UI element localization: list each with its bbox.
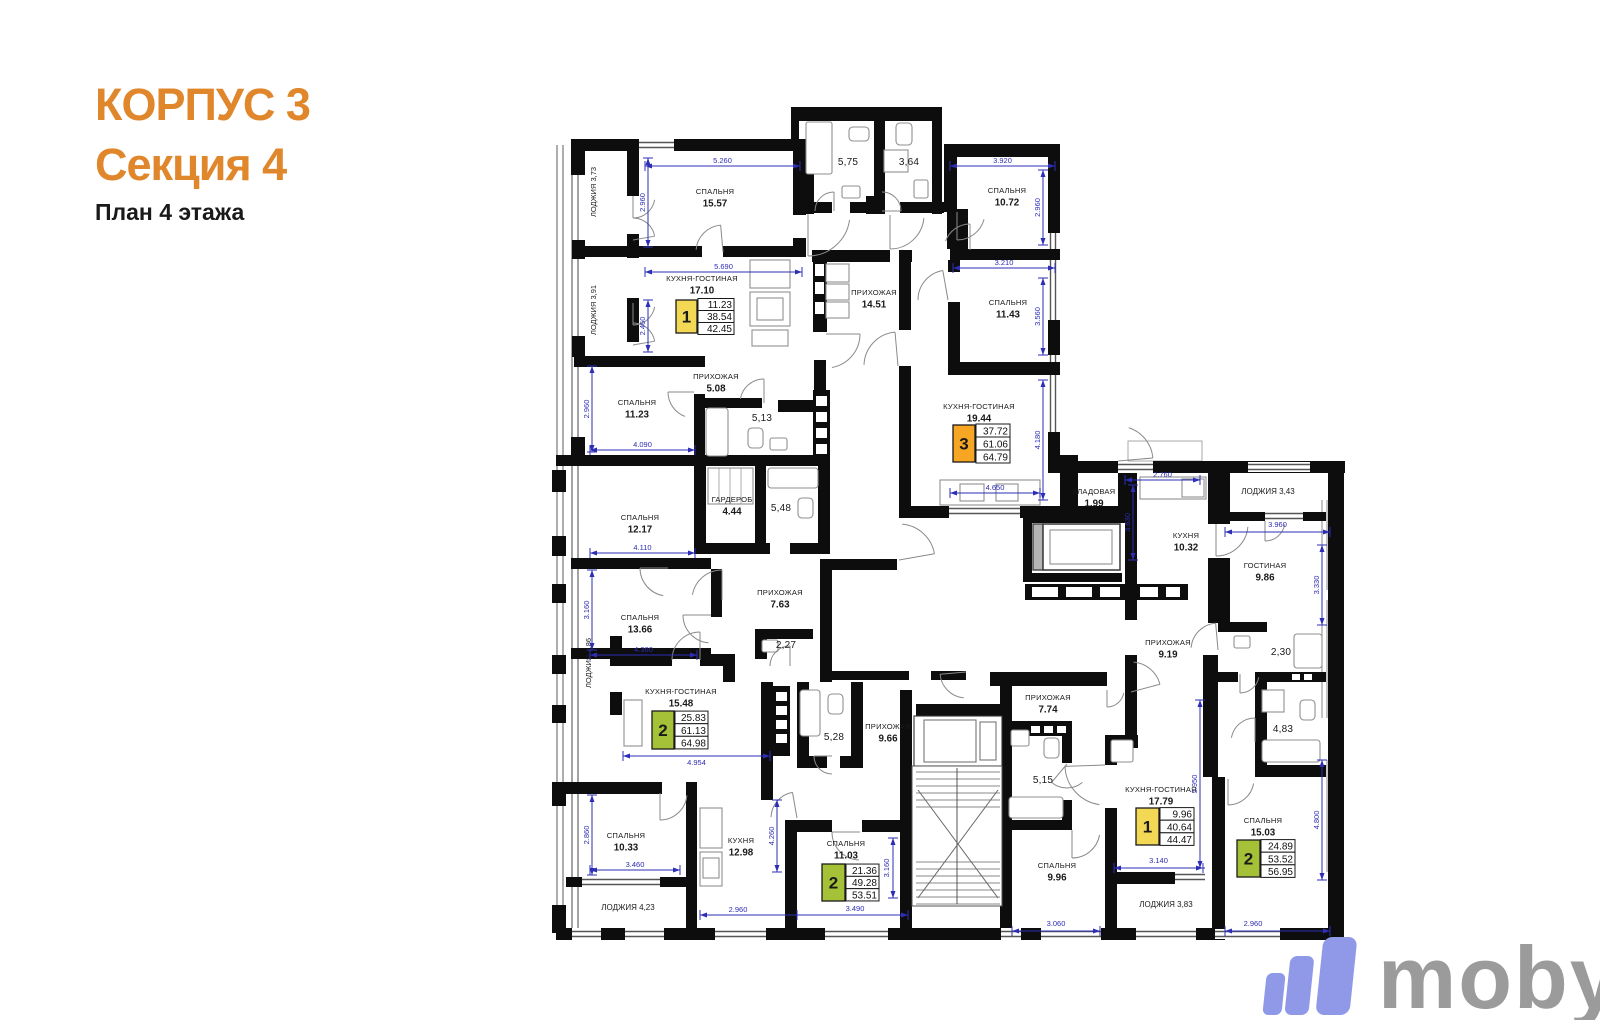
svg-text:21.36: 21.36	[852, 866, 877, 877]
svg-text:4.260: 4.260	[767, 827, 776, 846]
svg-text:13.66: 13.66	[628, 625, 653, 636]
svg-text:5.690: 5.690	[714, 262, 733, 271]
svg-text:ЛОДЖИЯ 4,23: ЛОДЖИЯ 4,23	[601, 903, 655, 912]
svg-text:7.63: 7.63	[770, 600, 790, 611]
svg-text:ГОСТИНАЯ: ГОСТИНАЯ	[1244, 561, 1287, 570]
svg-text:3: 3	[959, 435, 968, 454]
svg-text:1.99: 1.99	[1084, 499, 1104, 510]
svg-text:СПАЛЬНЯ: СПАЛЬНЯ	[989, 298, 1028, 307]
svg-text:5.950: 5.950	[1190, 775, 1199, 794]
svg-text:9.96: 9.96	[1173, 810, 1193, 821]
svg-text:4.110: 4.110	[633, 543, 651, 552]
svg-text:53.51: 53.51	[852, 890, 877, 901]
svg-text:2.960: 2.960	[582, 400, 591, 419]
svg-text:11.43: 11.43	[996, 310, 1021, 321]
svg-text:10.33: 10.33	[614, 843, 639, 854]
svg-text:1: 1	[1143, 818, 1152, 837]
svg-text:44.47: 44.47	[1167, 835, 1192, 846]
svg-text:5,48: 5,48	[771, 503, 792, 514]
svg-text:2.960: 2.960	[1244, 919, 1263, 928]
svg-text:2,30: 2,30	[1271, 647, 1292, 658]
svg-text:5,13: 5,13	[752, 413, 773, 424]
svg-text:3.330: 3.330	[1312, 576, 1321, 595]
svg-text:2: 2	[829, 874, 838, 893]
svg-text:ПРИХОЖАЯ: ПРИХОЖАЯ	[757, 588, 803, 597]
svg-text:3.160: 3.160	[582, 601, 591, 620]
svg-text:40.64: 40.64	[1167, 822, 1192, 833]
svg-text:СПАЛЬНЯ: СПАЛЬНЯ	[696, 187, 735, 196]
svg-text:5.08: 5.08	[706, 384, 726, 395]
svg-text:5,75: 5,75	[838, 157, 859, 168]
svg-text:14.51: 14.51	[862, 300, 887, 311]
svg-text:49.28: 49.28	[852, 878, 877, 889]
svg-text:2,27: 2,27	[776, 640, 797, 651]
svg-text:5.260: 5.260	[713, 156, 732, 165]
svg-text:15.03: 15.03	[1251, 828, 1276, 839]
svg-text:КУХНЯ: КУХНЯ	[1173, 531, 1199, 540]
svg-text:2.760: 2.760	[1153, 470, 1172, 479]
svg-text:10.32: 10.32	[1174, 543, 1199, 554]
svg-text:2.860: 2.860	[582, 826, 591, 845]
svg-text:25.83: 25.83	[681, 713, 706, 724]
svg-text:61.06: 61.06	[983, 440, 1008, 451]
svg-text:9.86: 9.86	[1255, 573, 1275, 584]
svg-text:ГАРДЕРОБ: ГАРДЕРОБ	[712, 495, 753, 504]
svg-text:11.23: 11.23	[708, 300, 733, 311]
svg-text:ЛОДЖИЯ 3,73: ЛОДЖИЯ 3,73	[589, 167, 598, 217]
svg-text:СПАЛЬНЯ: СПАЛЬНЯ	[988, 186, 1027, 195]
svg-text:3.630: 3.630	[1123, 513, 1132, 532]
svg-text:ПРИХОЖАЯ: ПРИХОЖАЯ	[1025, 693, 1071, 702]
svg-text:64.79: 64.79	[983, 453, 1008, 464]
svg-text:5,15: 5,15	[1033, 775, 1054, 786]
svg-text:СПАЛЬНЯ: СПАЛЬНЯ	[827, 839, 866, 848]
svg-text:12.98: 12.98	[729, 848, 754, 859]
svg-text:3.160: 3.160	[882, 859, 891, 878]
svg-text:3.920: 3.920	[993, 156, 1012, 165]
svg-text:53.52: 53.52	[1268, 854, 1293, 865]
svg-text:КЛАДОВАЯ: КЛАДОВАЯ	[1073, 487, 1116, 496]
svg-text:11.23: 11.23	[625, 410, 650, 421]
svg-text:7.74: 7.74	[1038, 705, 1058, 716]
svg-text:4.44: 4.44	[722, 507, 742, 518]
svg-text:3.060: 3.060	[1047, 919, 1066, 928]
svg-text:СПАЛЬНЯ: СПАЛЬНЯ	[607, 831, 646, 840]
svg-text:3.960: 3.960	[1268, 520, 1287, 529]
svg-text:10.72: 10.72	[995, 198, 1020, 209]
svg-text:9.19: 9.19	[1158, 650, 1178, 661]
svg-text:12.17: 12.17	[628, 525, 653, 536]
svg-text:СПАЛЬНЯ: СПАЛЬНЯ	[1244, 816, 1283, 825]
svg-text:ЛОДЖИЯ 3,83: ЛОДЖИЯ 3,83	[1139, 900, 1193, 909]
svg-text:3,64: 3,64	[899, 157, 920, 168]
svg-text:5,28: 5,28	[824, 732, 845, 743]
svg-text:4.800: 4.800	[1312, 811, 1321, 830]
svg-text:37.72: 37.72	[983, 427, 1008, 438]
svg-text:СПАЛЬНЯ: СПАЛЬНЯ	[618, 398, 657, 407]
svg-text:КУХНЯ-ГОСТИНАЯ: КУХНЯ-ГОСТИНАЯ	[666, 274, 738, 283]
svg-text:3.210: 3.210	[995, 258, 1014, 267]
svg-text:4.650: 4.650	[986, 483, 1005, 492]
svg-text:4.180: 4.180	[1033, 431, 1042, 450]
svg-text:3.490: 3.490	[846, 904, 865, 913]
svg-text:38.54: 38.54	[707, 312, 732, 323]
svg-text:2.960: 2.960	[1033, 198, 1042, 217]
svg-text:19.44: 19.44	[967, 414, 992, 425]
svg-text:64.98: 64.98	[681, 738, 706, 749]
svg-text:15.48: 15.48	[669, 699, 694, 710]
svg-text:42.45: 42.45	[707, 324, 732, 335]
svg-text:4.360: 4.360	[634, 645, 653, 654]
svg-text:24.89: 24.89	[1268, 842, 1293, 853]
svg-text:СПАЛЬНЯ: СПАЛЬНЯ	[621, 513, 660, 522]
svg-text:ПРИХОЖАЯ: ПРИХОЖАЯ	[865, 722, 911, 731]
svg-text:moby: moby	[1378, 928, 1600, 1020]
svg-text:15.57: 15.57	[703, 199, 728, 210]
svg-text:3.140: 3.140	[1149, 856, 1168, 865]
svg-text:2: 2	[658, 721, 667, 740]
svg-text:КУХНЯ-ГОСТИНАЯ: КУХНЯ-ГОСТИНАЯ	[645, 687, 717, 696]
svg-text:1: 1	[682, 308, 691, 327]
svg-text:3.460: 3.460	[626, 860, 645, 869]
svg-text:2.960: 2.960	[729, 905, 748, 914]
svg-text:2: 2	[1244, 850, 1253, 869]
svg-text:4.954: 4.954	[687, 758, 706, 767]
svg-text:СПАЛЬНЯ: СПАЛЬНЯ	[621, 613, 660, 622]
svg-text:4.090: 4.090	[633, 440, 652, 449]
svg-text:9.96: 9.96	[1047, 873, 1067, 884]
svg-text:ПРИХОЖАЯ: ПРИХОЖАЯ	[851, 288, 897, 297]
svg-text:11.03: 11.03	[834, 851, 859, 862]
svg-text:17.79: 17.79	[1149, 797, 1174, 808]
svg-text:СПАЛЬНЯ: СПАЛЬНЯ	[1038, 861, 1077, 870]
svg-text:61.13: 61.13	[681, 726, 706, 737]
svg-text:4,83: 4,83	[1273, 724, 1294, 735]
svg-text:КУХНЯ: КУХНЯ	[728, 836, 754, 845]
svg-text:3.560: 3.560	[1033, 307, 1042, 326]
svg-text:ПРИХОЖАЯ: ПРИХОЖАЯ	[1145, 638, 1191, 647]
svg-text:КУХНЯ-ГОСТИНАЯ: КУХНЯ-ГОСТИНАЯ	[943, 402, 1015, 411]
svg-text:2.960: 2.960	[638, 193, 647, 212]
svg-text:56.95: 56.95	[1268, 867, 1293, 878]
svg-text:КУХНЯ-ГОСТИНАЯ: КУХНЯ-ГОСТИНАЯ	[1125, 785, 1197, 794]
svg-text:ЛОДЖИЯ 3,43: ЛОДЖИЯ 3,43	[1241, 487, 1295, 496]
svg-text:9.66: 9.66	[878, 734, 898, 745]
svg-text:ЛОДЖИЯ 3,91: ЛОДЖИЯ 3,91	[589, 285, 598, 335]
svg-text:17.10: 17.10	[690, 286, 715, 297]
svg-text:2.460: 2.460	[638, 317, 647, 336]
svg-text:ПРИХОЖАЯ: ПРИХОЖАЯ	[693, 372, 739, 381]
